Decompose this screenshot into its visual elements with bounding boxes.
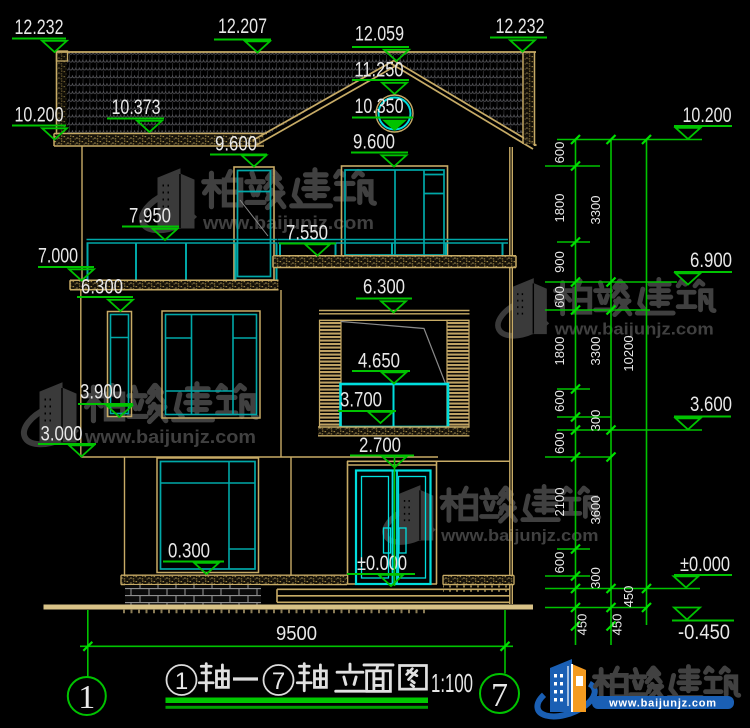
svg-text:9.600: 9.600 xyxy=(215,133,257,156)
svg-text:6.300: 6.300 xyxy=(81,276,123,299)
svg-text:300: 300 xyxy=(588,567,603,589)
svg-text:10.200: 10.200 xyxy=(683,104,732,127)
svg-text:9.600: 9.600 xyxy=(353,131,395,154)
svg-text:±0.000: ±0.000 xyxy=(680,553,730,576)
svg-text:10.350: 10.350 xyxy=(355,95,404,118)
svg-text:12.232: 12.232 xyxy=(496,15,545,38)
svg-text:7.950: 7.950 xyxy=(129,205,171,228)
svg-text:7.550: 7.550 xyxy=(286,222,328,245)
svg-text:3.900: 3.900 xyxy=(80,381,122,404)
svg-text:0.300: 0.300 xyxy=(168,540,210,563)
svg-text:3600: 3600 xyxy=(588,496,603,525)
svg-text:3300: 3300 xyxy=(588,196,603,225)
svg-text:6.300: 6.300 xyxy=(363,276,405,299)
svg-text:www.baijunjz.com: www.baijunjz.com xyxy=(608,698,717,710)
svg-text:2100: 2100 xyxy=(552,488,567,517)
svg-text:1: 1 xyxy=(175,668,188,695)
svg-text:600: 600 xyxy=(552,432,567,454)
svg-text:10200: 10200 xyxy=(621,335,636,371)
svg-text:10.373: 10.373 xyxy=(112,96,161,119)
svg-text:1800: 1800 xyxy=(552,194,567,223)
svg-text:450: 450 xyxy=(575,614,590,636)
svg-text:12.232: 12.232 xyxy=(15,16,64,39)
svg-text:900: 900 xyxy=(552,251,567,273)
svg-text:600: 600 xyxy=(552,286,567,308)
svg-text:1:100: 1:100 xyxy=(431,668,473,698)
svg-text:9500: 9500 xyxy=(276,623,317,645)
svg-text:6.900: 6.900 xyxy=(690,249,732,272)
svg-text:3300: 3300 xyxy=(588,337,603,366)
svg-text:600: 600 xyxy=(552,390,567,412)
svg-text:7: 7 xyxy=(491,677,508,714)
svg-text:12.207: 12.207 xyxy=(218,15,267,38)
svg-text:11.250: 11.250 xyxy=(355,59,404,82)
svg-text:450: 450 xyxy=(621,586,636,608)
svg-text:300: 300 xyxy=(588,410,603,432)
svg-text:3.600: 3.600 xyxy=(690,393,732,416)
svg-text:1800: 1800 xyxy=(552,337,567,366)
svg-text:600: 600 xyxy=(552,142,567,164)
svg-text:7.000: 7.000 xyxy=(38,245,78,268)
svg-text:1: 1 xyxy=(78,679,95,716)
svg-text:3.700: 3.700 xyxy=(340,389,382,412)
svg-text:www.baijunjz.com: www.baijunjz.com xyxy=(84,427,256,447)
svg-text:www.baijunjz.com: www.baijunjz.com xyxy=(440,526,598,545)
svg-text:2.700: 2.700 xyxy=(359,434,401,457)
svg-text:450: 450 xyxy=(610,614,625,636)
svg-text:±0.000: ±0.000 xyxy=(357,552,407,575)
svg-text:10.200: 10.200 xyxy=(15,104,64,127)
svg-text:3.000: 3.000 xyxy=(41,423,83,446)
svg-text:4.650: 4.650 xyxy=(358,350,400,373)
svg-text:600: 600 xyxy=(552,552,567,574)
svg-text:12.059: 12.059 xyxy=(355,23,404,46)
svg-text:7: 7 xyxy=(272,668,285,695)
svg-text:-0.450: -0.450 xyxy=(678,621,730,644)
